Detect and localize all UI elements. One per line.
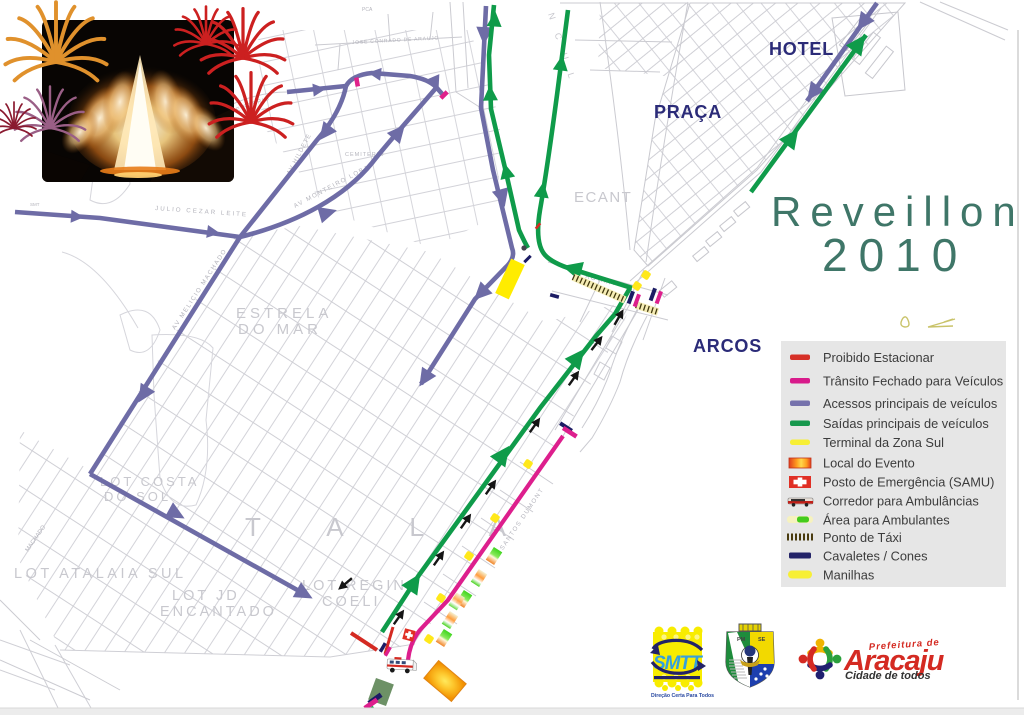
svg-text:Área para Ambulantes: Área para Ambulantes (823, 513, 950, 528)
svg-text:PCA: PCA (362, 7, 373, 13)
svg-text:PM: PM (737, 637, 746, 643)
svg-text:Direção Certa Para Todos: Direção Certa Para Todos (651, 693, 714, 699)
svg-text:Acessos principais de veículos: Acessos principais de veículos (823, 396, 997, 411)
svg-text:Saídas principais de veículos: Saídas principais de veículos (823, 416, 989, 431)
svg-text:SMT: SMT (30, 202, 40, 207)
svg-text:ARCOS: ARCOS (693, 336, 762, 356)
svg-text:HOTEL: HOTEL (769, 39, 834, 59)
svg-text:Reveillon: Reveillon (771, 188, 1024, 235)
svg-text:LOT REGINA: LOT REGINA (302, 578, 420, 594)
svg-text:Cavaletes / Cones: Cavaletes / Cones (823, 549, 928, 564)
svg-text:Ponto de Táxi: Ponto de Táxi (823, 530, 902, 545)
svg-text:ESTRELA: ESTRELA (236, 305, 332, 322)
svg-text:LOT ATALAIA SUL: LOT ATALAIA SUL (14, 566, 187, 582)
svg-text:Local do Evento: Local do Evento (823, 456, 915, 471)
svg-text:Corredor para Ambulâncias: Corredor para Ambulâncias (823, 494, 979, 509)
svg-text:2010: 2010 (822, 229, 968, 281)
svg-text:PRAÇA: PRAÇA (654, 102, 722, 122)
svg-text:DO MAR: DO MAR (238, 321, 322, 338)
svg-text:Cidade de todos: Cidade de todos (845, 670, 931, 682)
svg-text:SE: SE (758, 637, 766, 643)
svg-text:COELI: COELI (322, 594, 381, 610)
svg-text:Posto de Emergência (SAMU): Posto de Emergência (SAMU) (823, 475, 994, 490)
svg-text:LOT JD: LOT JD (172, 588, 240, 604)
svg-text:ENCANTADO: ENCANTADO (160, 604, 277, 620)
svg-text:Trânsito Fechado para Veículos: Trânsito Fechado para Veículos (823, 374, 1003, 389)
svg-text:Manilhas: Manilhas (823, 568, 874, 583)
svg-text:ECANT: ECANT (574, 189, 632, 206)
svg-text:Terminal da Zona Sul: Terminal da Zona Sul (823, 435, 944, 450)
svg-text:Proibido Estacionar: Proibido Estacionar (823, 350, 935, 365)
